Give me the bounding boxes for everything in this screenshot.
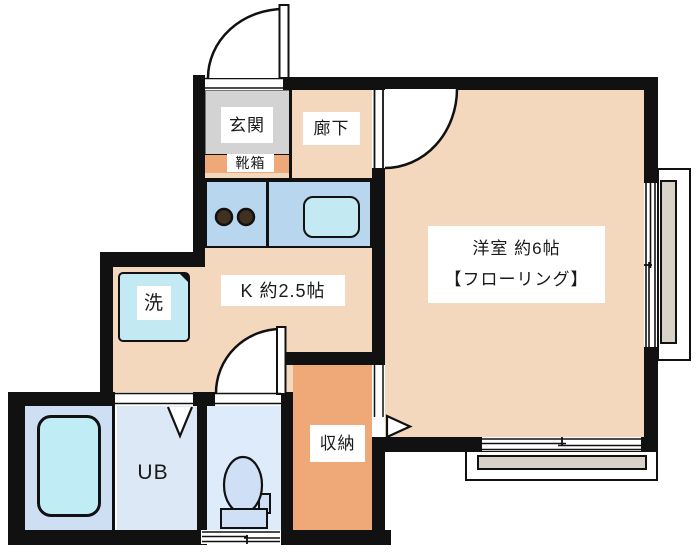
window-south	[482, 437, 641, 451]
toilet-door-opening	[213, 394, 281, 404]
wall-storage-top	[281, 352, 385, 365]
kitchen-counter-divider	[266, 180, 269, 248]
window-toilet-sashes	[202, 532, 280, 542]
wall-toilet-left	[197, 392, 207, 545]
entrance-door-swing	[208, 9, 284, 78]
entrance-door-arc	[208, 9, 284, 78]
line-hallway-bottom	[205, 178, 372, 180]
entrance-opening	[205, 79, 283, 89]
window-east	[644, 183, 657, 347]
storage-opening	[375, 365, 384, 417]
wall-bottom-left	[8, 530, 201, 545]
kitchen-sink	[303, 196, 360, 238]
wall-bath-top	[8, 392, 115, 406]
window-toilet	[201, 530, 281, 544]
main-room-label: 洋室 約6帖 【フローリング】	[428, 226, 605, 303]
washing-machine-label: 洗	[137, 286, 171, 320]
wall-right-lower	[644, 347, 658, 452]
wall-left-entrance	[193, 75, 205, 267]
main-room-door-leaf	[375, 88, 384, 168]
room-toilet	[207, 406, 281, 530]
window-south-sashes	[482, 439, 641, 450]
line-tub-divider	[112, 406, 115, 530]
wall-step	[100, 252, 205, 267]
balcony-south-deck	[477, 455, 647, 470]
bay-window-east-sill	[660, 180, 677, 344]
wall-mid-lower	[372, 437, 385, 545]
wall-mid-upper	[372, 168, 385, 354]
kitchen-label: K 約2.5帖	[221, 275, 345, 306]
unit-bath-label: UB	[130, 452, 176, 492]
wall-toilet-right	[281, 392, 293, 545]
wall-top	[283, 77, 658, 90]
wall-divider-entrance-hall	[289, 90, 292, 178]
entrance-label: 玄関	[221, 107, 273, 143]
wall-right-upper	[644, 77, 658, 183]
window-east-sashes	[646, 183, 655, 347]
storage-label: 収納	[310, 425, 365, 462]
shoe-box-label: 靴箱	[227, 154, 274, 172]
bathtub	[37, 415, 101, 517]
main-room-label-line2: 【フローリング】	[445, 265, 589, 296]
hallway-label: 廊下	[303, 112, 360, 145]
wall-bath-left	[8, 392, 25, 545]
main-room-label-line1: 洋室 約6帖	[472, 234, 560, 265]
wall-main-bottom	[372, 437, 484, 452]
floor-plan: 玄関 靴箱 廊下 K 約2.5帖 洋室 約6帖 【フローリング】 洗 UB 収納	[0, 0, 700, 552]
entrance-door-leaf	[280, 5, 289, 78]
wall-bottom-right	[281, 530, 391, 545]
wall-kitchen-left	[100, 252, 113, 406]
unit-bath-opening	[115, 394, 193, 404]
